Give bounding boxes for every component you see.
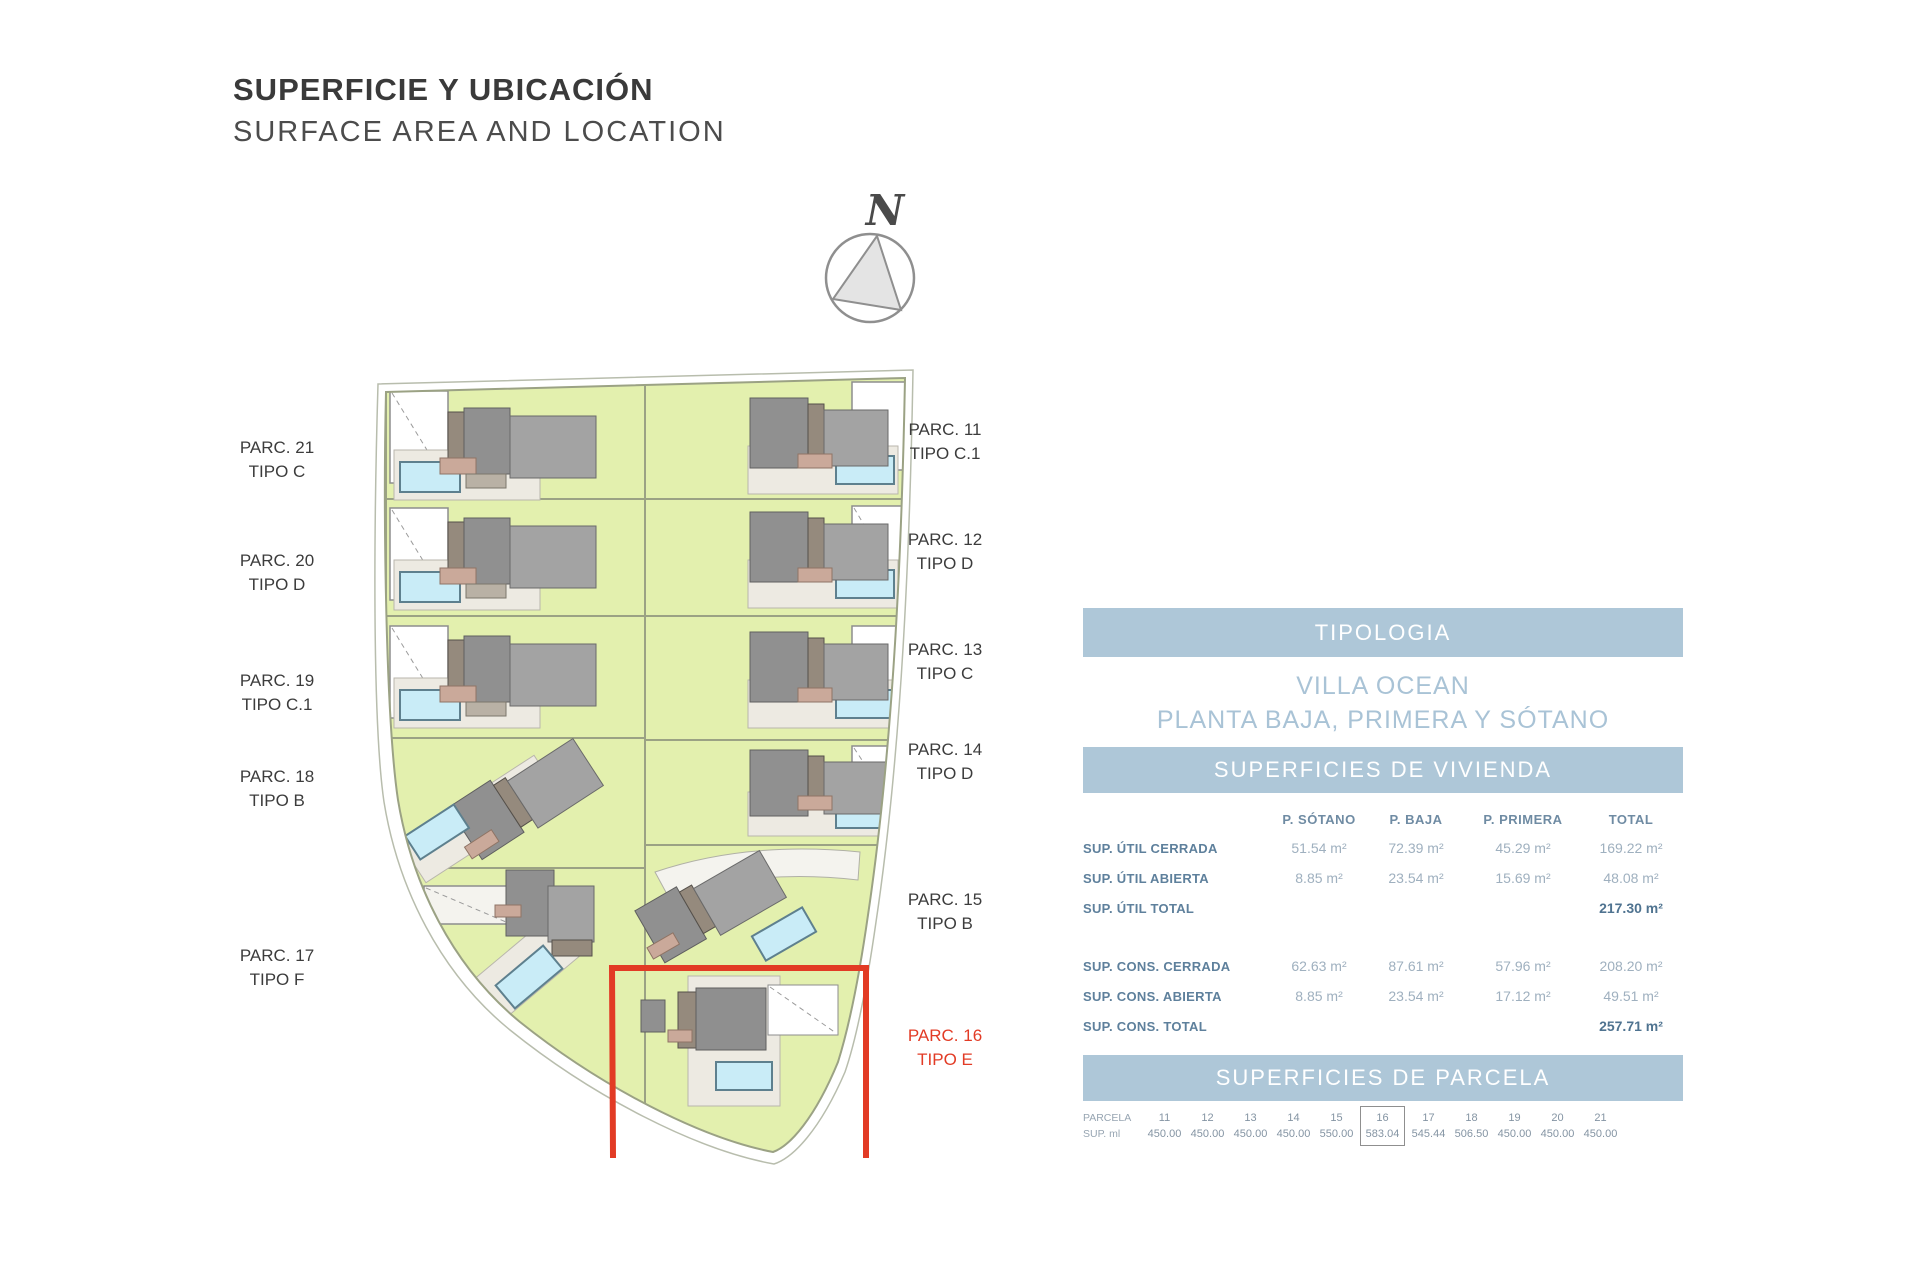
- label-parcel-12: PARC. 12 TIPO D: [865, 528, 1025, 576]
- parcel-21-number: PARC. 21: [197, 436, 357, 460]
- cell-value: 8.85 m²: [1273, 988, 1365, 1004]
- plot-table: PARCELA SUP. ml 11 450.00 12 450.00 13 4…: [1083, 1110, 1683, 1142]
- label-parcel-19: PARC. 19 TIPO C.1: [197, 669, 357, 717]
- parcel-17-number: PARC. 17: [197, 944, 357, 968]
- parcel-12-type: TIPO D: [865, 552, 1025, 576]
- dwelling-table-header: P. SÓTANO P. BAJA P. PRIMERA TOTAL: [1083, 805, 1683, 833]
- parcel-16-number: PARC. 16: [865, 1024, 1025, 1048]
- cell-value: 72.39 m²: [1365, 840, 1467, 856]
- parcel-21-type: TIPO C: [197, 460, 357, 484]
- cell-value: 23.54 m²: [1365, 988, 1467, 1004]
- plot-row-label-sup: SUP. ml: [1083, 1126, 1143, 1142]
- label-parcel-14: PARC. 14 TIPO D: [865, 738, 1025, 786]
- cell-value: 17.12 m²: [1467, 988, 1579, 1004]
- plot-row-label-parcela: PARCELA: [1083, 1110, 1143, 1126]
- col-header-total: TOTAL: [1579, 812, 1683, 827]
- cell-value-total: 217.30 m²: [1579, 900, 1683, 916]
- label-parcel-11: PARC. 11 TIPO C.1: [865, 418, 1025, 466]
- typology-villa-name: VILLA OCEAN: [1083, 669, 1683, 703]
- cell-value: 45.29 m²: [1467, 840, 1579, 856]
- plot-col-11: 11 450.00: [1143, 1110, 1186, 1142]
- plot-col-20: 20 450.00: [1536, 1110, 1579, 1142]
- typology-subtitle: VILLA OCEAN PLANTA BAJA, PRIMERA Y SÓTAN…: [1083, 669, 1683, 737]
- parcel-15-number: PARC. 15: [865, 888, 1025, 912]
- plot-col-19: 19 450.00: [1493, 1110, 1536, 1142]
- parcel-19-number: PARC. 19: [197, 669, 357, 693]
- parcel-20-type: TIPO D: [197, 573, 357, 597]
- parcel-19-type: TIPO C.1: [197, 693, 357, 717]
- plot-col-15: 15 550.00: [1315, 1110, 1358, 1142]
- plot-col-13: 13 450.00: [1229, 1110, 1272, 1142]
- label-parcel-15: PARC. 15 TIPO B: [865, 888, 1025, 936]
- cell-value: 49.51 m²: [1579, 988, 1683, 1004]
- label-parcel-21: PARC. 21 TIPO C: [197, 436, 357, 484]
- plot-col-17: 17 545.44: [1407, 1110, 1450, 1142]
- plot-surfaces-band: SUPERFICIES DE PARCELA: [1083, 1055, 1683, 1101]
- row-label: SUP. ÚTIL TOTAL: [1083, 901, 1273, 916]
- parcel-11-number: PARC. 11: [865, 418, 1025, 442]
- cell-value: 8.85 m²: [1273, 870, 1365, 886]
- cell-value: 169.22 m²: [1579, 840, 1683, 856]
- parcel-11-type: TIPO C.1: [865, 442, 1025, 466]
- parcel-18-number: PARC. 18: [197, 765, 357, 789]
- parcels-layer: [386, 375, 913, 1178]
- table-row: SUP. ÚTIL TOTAL 217.30 m²: [1083, 893, 1683, 923]
- cell-value-total: 257.71 m²: [1579, 1018, 1683, 1034]
- info-panel: TIPOLOGIA VILLA OCEAN PLANTA BAJA, PRIME…: [1083, 608, 1683, 1142]
- plot-col-18: 18 506.50: [1450, 1110, 1493, 1142]
- label-parcel-17: PARC. 17 TIPO F: [197, 944, 357, 992]
- cell-value: 208.20 m²: [1579, 958, 1683, 974]
- label-parcel-16-highlighted: PARC. 16 TIPO E: [865, 1024, 1025, 1072]
- table-row: SUP. ÚTIL ABIERTA 8.85 m² 23.54 m² 15.69…: [1083, 863, 1683, 893]
- parcel-18-type: TIPO B: [197, 789, 357, 813]
- plot-table-row-labels: PARCELA SUP. ml: [1083, 1110, 1143, 1142]
- plot-col-16-highlighted: 16 583.04: [1360, 1106, 1405, 1146]
- label-parcel-18: PARC. 18 TIPO B: [197, 765, 357, 813]
- row-label: SUP. CONS. ABIERTA: [1083, 989, 1273, 1004]
- table-row: SUP. CONS. ABIERTA 8.85 m² 23.54 m² 17.1…: [1083, 981, 1683, 1011]
- parcel-13-number: PARC. 13: [865, 638, 1025, 662]
- table-row: SUP. ÚTIL CERRADA 51.54 m² 72.39 m² 45.2…: [1083, 833, 1683, 863]
- cell-value: 87.61 m²: [1365, 958, 1467, 974]
- parcel-14-number: PARC. 14: [865, 738, 1025, 762]
- brochure-page: SUPERFICIE Y UBICACIÓN SURFACE AREA AND …: [0, 0, 1920, 1280]
- col-header-primera: P. PRIMERA: [1467, 812, 1579, 827]
- cell-value: 62.63 m²: [1273, 958, 1365, 974]
- label-parcel-20: PARC. 20 TIPO D: [197, 549, 357, 597]
- typology-band: TIPOLOGIA: [1083, 608, 1683, 657]
- parcel-14-type: TIPO D: [865, 762, 1025, 786]
- table-row: SUP. CONS. TOTAL 257.71 m²: [1083, 1011, 1683, 1041]
- plot-col-21: 21 450.00: [1579, 1110, 1622, 1142]
- cell-value: 23.54 m²: [1365, 870, 1467, 886]
- compass-icon: [826, 234, 914, 322]
- parcel-20-number: PARC. 20: [197, 549, 357, 573]
- col-header-baja: P. BAJA: [1365, 812, 1467, 827]
- cell-value: 57.96 m²: [1467, 958, 1579, 974]
- parcel-17-type: TIPO F: [197, 968, 357, 992]
- row-label: SUP. CONS. CERRADA: [1083, 959, 1273, 974]
- row-label: SUP. ÚTIL CERRADA: [1083, 841, 1273, 856]
- row-label: SUP. CONS. TOTAL: [1083, 1019, 1273, 1034]
- cell-value: 15.69 m²: [1467, 870, 1579, 886]
- plot-col-12: 12 450.00: [1186, 1110, 1229, 1142]
- parcel-12-number: PARC. 12: [865, 528, 1025, 552]
- parcel-16-type: TIPO E: [865, 1048, 1025, 1072]
- typology-floors: PLANTA BAJA, PRIMERA Y SÓTANO: [1083, 703, 1683, 737]
- parcel-15-type: TIPO B: [865, 912, 1025, 936]
- dwelling-surfaces-band: SUPERFICIES DE VIVIENDA: [1083, 747, 1683, 793]
- parcel-13-type: TIPO C: [865, 662, 1025, 686]
- cell-value: 51.54 m²: [1273, 840, 1365, 856]
- table-row: SUP. CONS. CERRADA 62.63 m² 87.61 m² 57.…: [1083, 951, 1683, 981]
- row-label: SUP. ÚTIL ABIERTA: [1083, 871, 1273, 886]
- label-parcel-13: PARC. 13 TIPO C: [865, 638, 1025, 686]
- cell-value: 48.08 m²: [1579, 870, 1683, 886]
- plot-col-14: 14 450.00: [1272, 1110, 1315, 1142]
- col-header-sotano: P. SÓTANO: [1273, 812, 1365, 827]
- table-spacer: [1083, 923, 1683, 951]
